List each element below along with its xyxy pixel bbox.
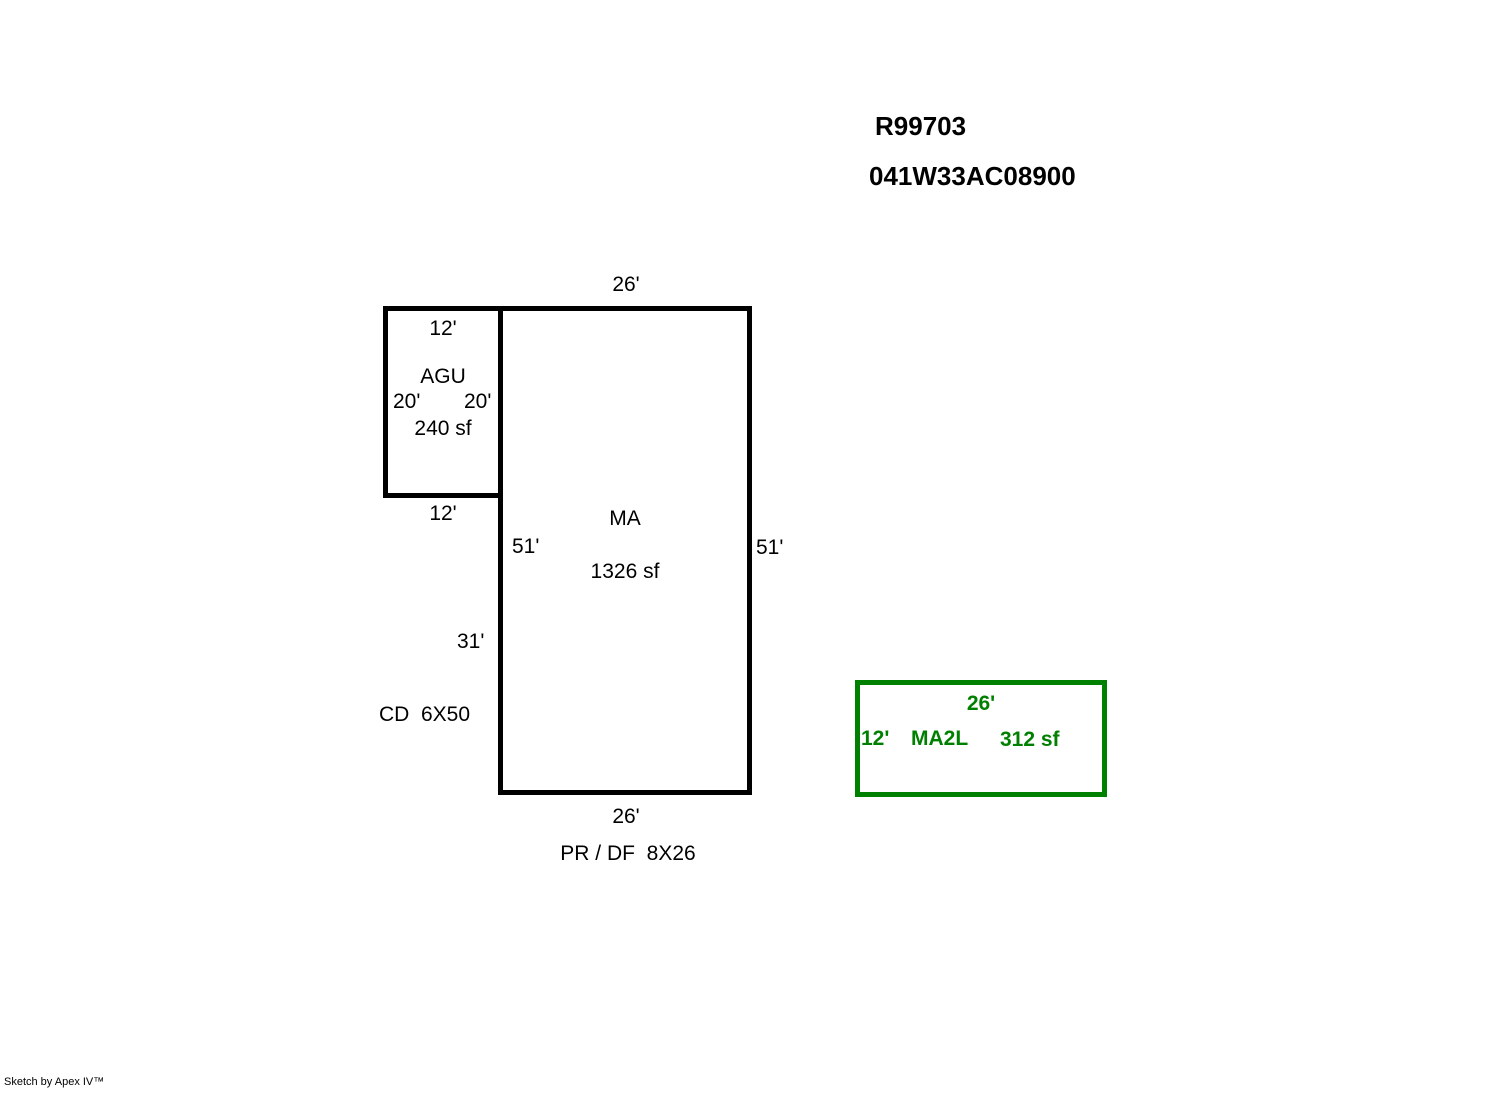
agu-label: AGU bbox=[388, 366, 498, 387]
ma2l-dim-left: 12' bbox=[861, 728, 889, 749]
pr-df-annotation: PR / DF 8X26 bbox=[500, 843, 756, 864]
ma-dim-left-lower: 31' bbox=[457, 631, 484, 652]
ma-sqft: 1326 sf bbox=[503, 561, 747, 582]
ma-dim-left-upper: 51' bbox=[512, 536, 539, 557]
ma-dim-top: 26' bbox=[500, 274, 752, 295]
ma-label: MA bbox=[503, 508, 747, 529]
map-taxlot-id: 041W33AC08900 bbox=[869, 163, 1076, 189]
apex-credit: Sketch by Apex IV™ bbox=[4, 1077, 104, 1088]
ma2l-dim-top: 26' bbox=[855, 693, 1107, 714]
agu-sqft: 240 sf bbox=[388, 418, 498, 439]
ma2l-label: MA2L bbox=[911, 728, 968, 749]
ma-dim-bottom: 26' bbox=[500, 806, 752, 827]
agu-dim-right: 20' bbox=[464, 391, 491, 412]
parcel-id: R99703 bbox=[875, 113, 966, 139]
agu-dim-bottom: 12' bbox=[388, 503, 498, 524]
agu-dim-left: 20' bbox=[393, 391, 420, 412]
cd-annotation: CD 6X50 bbox=[379, 704, 470, 725]
agu-dim-top: 12' bbox=[388, 318, 498, 339]
ma2l-sqft: 312 sf bbox=[1000, 729, 1060, 750]
sketch-canvas: R99703 041W33AC08900 26' MA 51' 1326 sf … bbox=[0, 0, 1492, 1094]
ma-dim-right: 51' bbox=[756, 537, 783, 558]
